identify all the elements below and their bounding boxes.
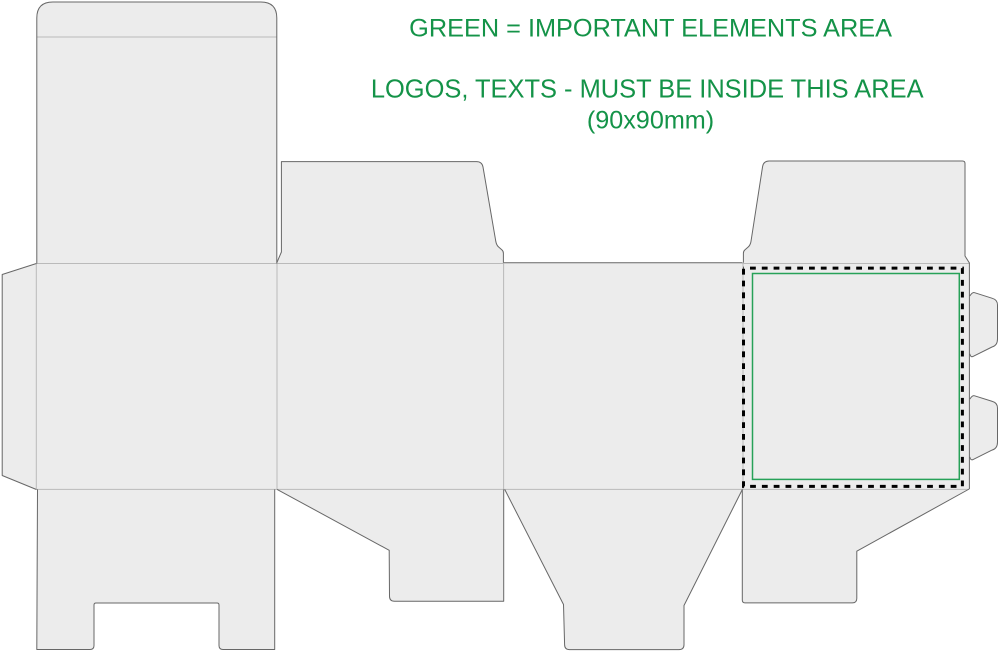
svg-text:GREEN = IMPORTANT ELEMENTS ARE: GREEN = IMPORTANT ELEMENTS AREA [409,15,892,43]
svg-text:LOGOS, TEXTS - MUST BE INSIDE: LOGOS, TEXTS - MUST BE INSIDE THIS AREA [371,75,924,103]
svg-text:(90x90mm): (90x90mm) [587,107,714,135]
